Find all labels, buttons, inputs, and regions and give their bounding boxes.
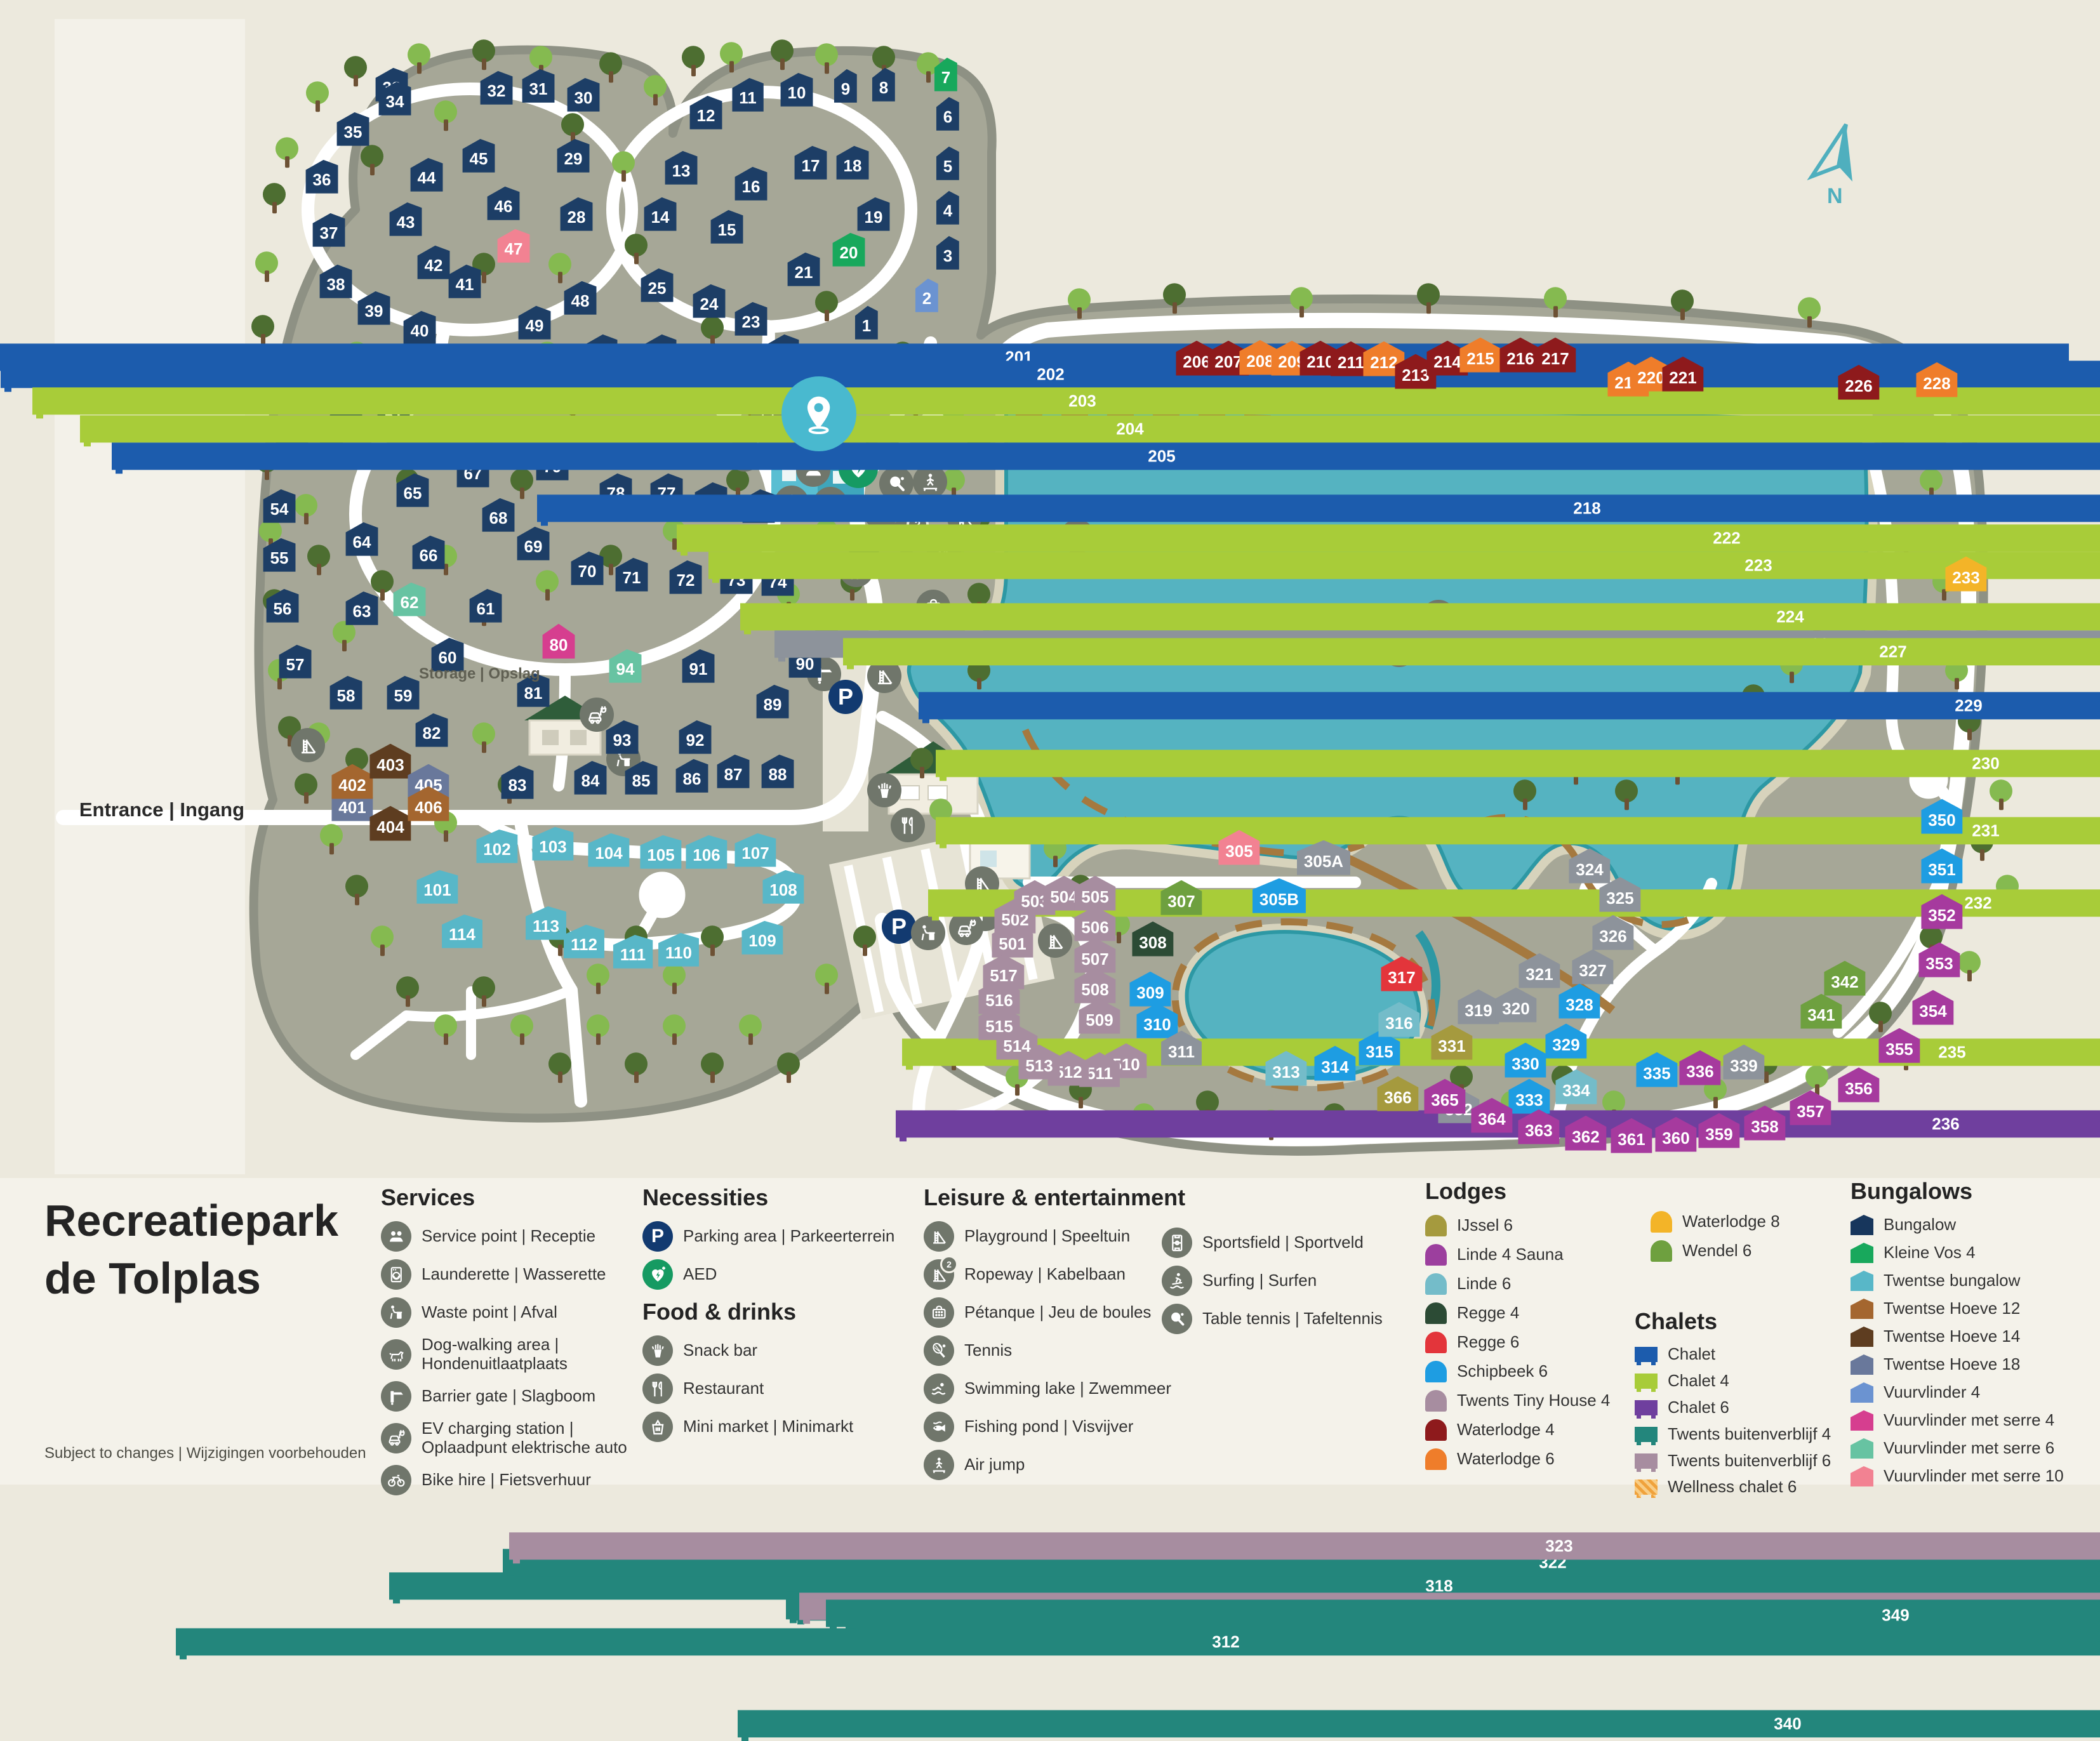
legend-item-label: Table tennis | Tafeltennis xyxy=(1202,1309,1383,1328)
legend-item: Twentse Hoeve 14 xyxy=(1851,1327,2064,1347)
legend-item-label: Twentse Hoeve 14 xyxy=(1884,1327,2020,1346)
tree xyxy=(701,316,724,339)
tree xyxy=(1417,283,1440,306)
tree xyxy=(1163,283,1186,306)
legend-item: Snack bar xyxy=(642,1335,853,1366)
park-title-line1: Recreatiepark xyxy=(44,1192,338,1250)
tree xyxy=(1671,289,1694,312)
tennis-icon xyxy=(924,1335,954,1366)
plot-marker-349[interactable]: 349 xyxy=(846,1601,2100,1629)
legend-item: Dog-walking area | Hondenuitlaatplaats xyxy=(381,1335,635,1374)
tree xyxy=(529,46,552,69)
legend-item-label: EV charging station | Oplaadpunt elektri… xyxy=(422,1419,635,1457)
plot-marker-323[interactable]: 323 xyxy=(509,1532,2100,1559)
legend-header: Food & drinks xyxy=(642,1299,853,1325)
legend-item: Vuurvlinder met serre 10 xyxy=(1851,1466,2064,1486)
swim-icon xyxy=(924,1374,954,1404)
plot-marker-340[interactable]: 340 xyxy=(738,1710,2100,1737)
legend-item: Launderette | Wasserette xyxy=(381,1259,635,1290)
legend: Recreatiepark de Tolplas Subject to chan… xyxy=(0,1178,2100,1485)
legend-item: Twentse Hoeve 18 xyxy=(1851,1354,2064,1375)
legend-item-label: Waterlodge 8 xyxy=(1682,1212,1780,1231)
legend-item-label: Vuurvlinder 4 xyxy=(1884,1383,1980,1402)
legend-item-label: Fishing pond | Visvijver xyxy=(964,1417,1133,1436)
plot-marker-224[interactable]: 224 xyxy=(740,603,2100,630)
sportsfield-icon xyxy=(1162,1228,1192,1258)
tree xyxy=(771,39,794,62)
legend-item: Tennis xyxy=(924,1335,1178,1366)
accommodation-swatch xyxy=(1851,1438,1873,1459)
accommodation-swatch xyxy=(1425,1361,1447,1382)
tree xyxy=(548,253,571,275)
plot-marker-227[interactable]: 227 xyxy=(843,638,2100,665)
legend-item-label: Parking area | Parkeerterrein xyxy=(683,1227,894,1246)
legend-header: Services xyxy=(381,1184,635,1211)
accommodation-swatch xyxy=(1851,1354,1873,1375)
legend-necessities: NecessitiesPParking area | Parkeerterrei… xyxy=(642,1184,894,1297)
plot-marker-222[interactable]: 222 xyxy=(677,524,2100,552)
legend-item: Chalet 4 xyxy=(1635,1372,1831,1391)
tree xyxy=(967,583,990,606)
accommodation-swatch xyxy=(1651,1240,1672,1262)
tree xyxy=(682,46,705,69)
accommodation-swatch xyxy=(1851,1327,1873,1347)
legend-item-label: Waterlodge 4 xyxy=(1457,1420,1555,1440)
legend-item: EV charging station | Oplaadpunt elektri… xyxy=(381,1419,635,1457)
accommodation-swatch xyxy=(1425,1419,1447,1441)
tree xyxy=(472,976,495,999)
parking-icon: P xyxy=(642,1221,673,1252)
legend-item-label: Twentse Hoeve 18 xyxy=(1884,1355,2020,1374)
accommodation-swatch xyxy=(1851,1299,1873,1319)
tree xyxy=(815,43,838,66)
legend-item-label: Chalet xyxy=(1668,1345,1715,1364)
legend-item-label: Wellness chalet 6 xyxy=(1668,1478,1797,1497)
accommodation-swatch xyxy=(1651,1211,1672,1233)
tree xyxy=(344,56,367,79)
legend-item-label: Dog-walking area | Hondenuitlaatplaats xyxy=(422,1335,635,1374)
legend-leisure-2: Sportsfield | SportveldSurfing | SurfenT… xyxy=(1162,1228,1383,1342)
legend-item: Pétanque | Jeu de boules xyxy=(924,1297,1178,1328)
tree xyxy=(1544,287,1567,310)
legend-item: Service point | Receptie xyxy=(381,1221,635,1252)
barrier-icon xyxy=(381,1381,411,1412)
tree xyxy=(510,468,533,491)
legend-item: Sportsfield | Sportveld xyxy=(1162,1228,1383,1258)
tree xyxy=(255,251,278,274)
legend-item: Air jump xyxy=(924,1450,1178,1480)
tree xyxy=(701,925,724,948)
tree xyxy=(434,1014,457,1037)
tree xyxy=(434,100,457,123)
tree xyxy=(306,81,329,104)
legend-item-label: Schipbeek 6 xyxy=(1457,1362,1548,1381)
tree xyxy=(720,42,743,65)
tree xyxy=(587,963,609,986)
accommodation-swatch xyxy=(1635,1427,1658,1442)
legend-item-label: Vuurvlinder met serre 6 xyxy=(1884,1439,2054,1458)
restaurant-icon xyxy=(642,1374,673,1404)
accommodation-swatch xyxy=(1851,1410,1873,1431)
legend-item-label: Vuurvlinder met serre 4 xyxy=(1884,1411,2054,1430)
legend-item: IJssel 6 xyxy=(1425,1215,1610,1236)
legend-item-label: Twents Tiny House 4 xyxy=(1457,1391,1610,1410)
petanque-icon xyxy=(924,1297,954,1328)
tree xyxy=(663,963,686,986)
legend-item-label: Linde 4 Sauna xyxy=(1457,1245,1564,1264)
tree xyxy=(777,1052,800,1075)
tree xyxy=(1805,1065,1828,1088)
park-title: Recreatiepark de Tolplas xyxy=(44,1192,338,1307)
legend-item: Surfing | Surfen xyxy=(1162,1266,1383,1296)
tree xyxy=(361,145,383,168)
ev-icon[interactable] xyxy=(580,698,614,732)
accommodation-swatch xyxy=(1635,1400,1658,1415)
tree xyxy=(663,1014,686,1037)
tree xyxy=(510,1014,533,1037)
tree xyxy=(251,315,274,338)
tree xyxy=(371,925,394,948)
restaurant-icon[interactable] xyxy=(891,808,925,842)
tree xyxy=(295,494,317,517)
tree xyxy=(295,773,317,796)
fish-icon xyxy=(924,1412,954,1442)
accommodation-swatch xyxy=(1425,1332,1447,1353)
tree xyxy=(536,570,559,593)
plot-marker-229[interactable]: 229 xyxy=(919,692,2100,719)
tabletennis-icon xyxy=(1162,1304,1192,1334)
legend-item: Linde 6 xyxy=(1425,1273,1610,1295)
tree xyxy=(612,151,635,174)
legend-item-label: Barrier gate | Slagboom xyxy=(422,1387,595,1406)
plot-marker-202[interactable]: 202 xyxy=(1,361,2100,388)
snack-icon[interactable] xyxy=(867,773,901,807)
legend-item: Twentse bungalow xyxy=(1851,1271,2064,1291)
legend-item-label: Linde 6 xyxy=(1457,1274,1511,1294)
minimarket-icon xyxy=(642,1412,673,1442)
legend-item-label: Ropeway | Kabelbaan xyxy=(964,1265,1126,1284)
legend-item: Wellness chalet 6 xyxy=(1635,1478,1831,1497)
plot-marker-204[interactable]: 204 xyxy=(80,415,2100,442)
legend-item-label: Regge 6 xyxy=(1457,1333,1519,1352)
legend-item-label: Mini market | Minimarkt xyxy=(683,1417,853,1436)
legend-item: Vuurvlinder met serre 6 xyxy=(1851,1438,2064,1459)
legend-item-label: Restaurant xyxy=(683,1379,764,1398)
tree xyxy=(625,234,648,256)
accommodation-swatch xyxy=(1851,1271,1873,1291)
legend-lodges-2: Waterlodge 8Wendel 6 xyxy=(1651,1211,1780,1269)
legend-item: PParking area | Parkeerterrein xyxy=(642,1221,894,1252)
playground-icon xyxy=(924,1221,954,1252)
tree xyxy=(263,183,286,206)
accommodation-swatch xyxy=(1425,1273,1447,1295)
tree xyxy=(1990,779,2012,802)
tree xyxy=(726,468,749,491)
subject-note: Subject to changes | Wijzigingen voorbeh… xyxy=(44,1445,366,1462)
legend-bungalows: BungalowsBungalowKleine Vos 4Twentse bun… xyxy=(1851,1178,2064,1494)
legend-leisure-1: Leisure & entertainmentPlayground | Spee… xyxy=(924,1184,1185,1488)
legend-item-label: Air jump xyxy=(964,1455,1025,1474)
legend-item-label: IJssel 6 xyxy=(1457,1216,1513,1235)
legend-item-label: Tennis xyxy=(964,1341,1012,1360)
legend-item-label: Chalet 6 xyxy=(1668,1398,1729,1417)
waste-icon[interactable] xyxy=(911,916,945,950)
legend-food: Food & drinksSnack barRestaurantMini mar… xyxy=(642,1299,853,1450)
entrance-label: Entrance | Ingang xyxy=(79,798,244,821)
legend-item-label: Wendel 6 xyxy=(1682,1241,1751,1261)
legend-item-label: Regge 4 xyxy=(1457,1304,1519,1323)
legend-item: Chalet xyxy=(1635,1345,1831,1364)
park-title-line2: de Tolplas xyxy=(44,1250,338,1307)
legend-item: Waterlodge 4 xyxy=(1425,1419,1610,1441)
waste-icon xyxy=(381,1297,411,1328)
tree xyxy=(1068,288,1091,311)
plot-marker-312[interactable]: 312 xyxy=(176,1628,2100,1655)
tree xyxy=(644,75,667,98)
tree xyxy=(396,976,419,999)
legend-item-label: Pétanque | Jeu de boules xyxy=(964,1303,1151,1322)
tree xyxy=(872,46,895,69)
playground-icon[interactable] xyxy=(291,728,325,762)
tree xyxy=(910,748,933,771)
legend-item: Kleine Vos 4 xyxy=(1851,1243,2064,1263)
legend-item-label: Bungalow xyxy=(1884,1215,1956,1235)
legend-item-label: Vuurvlinder met serre 10 xyxy=(1884,1467,2064,1486)
legend-item: Barrier gate | Slagboom xyxy=(381,1381,635,1412)
service-icon xyxy=(381,1221,411,1252)
tree xyxy=(472,722,495,745)
pin-icon[interactable] xyxy=(781,376,856,451)
legend-item: Wendel 6 xyxy=(1651,1240,1780,1262)
tree xyxy=(548,1052,571,1075)
legend-chalets: ChaletsChaletChalet 4Chalet 6Twents buit… xyxy=(1635,1308,1831,1504)
plot-marker-203[interactable]: 203 xyxy=(32,387,2100,414)
legend-item-label: Twentse bungalow xyxy=(1884,1271,2020,1290)
legend-item: Bike hire | Fietsverhuur xyxy=(381,1465,635,1495)
legend-item: AED xyxy=(642,1259,894,1290)
legend-item: Restaurant xyxy=(642,1374,853,1404)
accommodation-swatch xyxy=(1425,1244,1447,1266)
tree xyxy=(739,1014,762,1037)
legend-item: Regge 6 xyxy=(1425,1332,1610,1353)
legend-item: 2Ropeway | Kabelbaan xyxy=(924,1259,1178,1290)
snack-icon xyxy=(642,1335,673,1366)
legend-item-label: Sportsfield | Sportveld xyxy=(1202,1233,1364,1252)
tree xyxy=(599,52,622,75)
legend-item: Twents Tiny House 4 xyxy=(1425,1390,1610,1412)
ev-icon xyxy=(381,1423,411,1453)
tree xyxy=(815,291,838,314)
legend-header: Leisure & entertainment xyxy=(924,1184,1185,1211)
legend-item-label: AED xyxy=(683,1265,717,1284)
legend-item-label: Surfing | Surfen xyxy=(1202,1271,1317,1290)
accommodation-swatch xyxy=(1425,1302,1447,1324)
legend-item-label: Chalet 4 xyxy=(1668,1372,1729,1391)
legend-item: Linde 4 Sauna xyxy=(1425,1244,1610,1266)
tree xyxy=(1798,297,1821,320)
tree xyxy=(1920,468,1943,491)
legend-item: Regge 4 xyxy=(1425,1302,1610,1324)
accommodation-swatch xyxy=(1635,1480,1658,1495)
tree xyxy=(1958,951,1981,974)
tree xyxy=(815,963,838,986)
tree xyxy=(625,1052,648,1075)
legend-item-label: Twents buitenverblijf 6 xyxy=(1668,1452,1831,1471)
tree xyxy=(371,570,394,593)
legend-item-label: Twents buitenverblijf 4 xyxy=(1668,1425,1831,1444)
accommodation-swatch xyxy=(1635,1347,1658,1362)
legend-lodges: LodgesIJssel 6Linde 4 SaunaLinde 6Regge … xyxy=(1425,1178,1610,1478)
accommodation-swatch xyxy=(1425,1390,1447,1412)
accommodation-swatch xyxy=(1851,1243,1873,1263)
playground-icon[interactable] xyxy=(1038,923,1072,958)
parking-icon[interactable]: P xyxy=(882,910,916,944)
tree xyxy=(561,113,584,136)
legend-item-label: Service point | Receptie xyxy=(422,1227,595,1246)
legend-item: Bungalow xyxy=(1851,1215,2064,1235)
tree xyxy=(276,137,298,160)
storage-label: Storage | Opslag xyxy=(419,665,540,683)
tree xyxy=(1615,779,1638,802)
plot-marker-218[interactable]: 218 xyxy=(537,494,2100,522)
accommodation-swatch xyxy=(1851,1215,1873,1235)
legend-item-label: Snack bar xyxy=(683,1341,757,1360)
accommodation-swatch xyxy=(1635,1453,1658,1469)
legend-header: Necessities xyxy=(642,1184,894,1211)
accommodation-swatch xyxy=(1851,1466,1873,1486)
compass-n-label: N xyxy=(1827,184,1843,209)
tree xyxy=(345,875,368,897)
legend-item: Chalet 6 xyxy=(1635,1398,1831,1417)
legend-item: Waste point | Afval xyxy=(381,1297,635,1328)
legend-item-label: Kleine Vos 4 xyxy=(1884,1243,1976,1262)
accommodation-swatch xyxy=(1425,1215,1447,1236)
legend-item: Twents buitenverblijf 4 xyxy=(1635,1425,1831,1444)
legend-header: Lodges xyxy=(1425,1178,1610,1205)
legend-item-label: Bike hire | Fietsverhuur xyxy=(422,1471,591,1490)
tree xyxy=(853,925,876,948)
tree xyxy=(1869,1002,1892,1024)
tree xyxy=(1290,287,1313,310)
legend-item: Waterlodge 8 xyxy=(1651,1211,1780,1233)
park-map: P2PP 12345678910111213141516171819202122… xyxy=(0,0,2100,1485)
legend-item: Swimming lake | Zwemmeer xyxy=(924,1374,1178,1404)
legend-header: Chalets xyxy=(1635,1308,1831,1335)
legend-item-label: Waterlodge 6 xyxy=(1457,1450,1555,1469)
legend-item: Waterlodge 6 xyxy=(1425,1448,1610,1470)
laundry-icon xyxy=(381,1259,411,1290)
legend-item: Vuurvlinder 4 xyxy=(1851,1382,2064,1403)
accommodation-swatch xyxy=(1851,1382,1873,1403)
legend-item: Mini market | Minimarkt xyxy=(642,1412,853,1442)
tree xyxy=(701,1052,724,1075)
tree xyxy=(307,545,330,567)
legend-item: Schipbeek 6 xyxy=(1425,1361,1610,1382)
legend-item: Twentse Hoeve 12 xyxy=(1851,1299,2064,1319)
tree xyxy=(587,1014,609,1037)
dog-icon xyxy=(381,1339,411,1370)
ropeway-icon: 2 xyxy=(924,1259,954,1290)
legend-item-label: Launderette | Wasserette xyxy=(422,1265,606,1284)
aed-icon xyxy=(642,1259,673,1290)
legend-item: Fishing pond | Visvijver xyxy=(924,1412,1178,1442)
parking-icon[interactable]: P xyxy=(828,680,863,714)
airjump-icon xyxy=(924,1450,954,1480)
tree xyxy=(408,43,430,66)
legend-item-label: Swimming lake | Zwemmeer xyxy=(964,1379,1171,1398)
legend-item: Vuurvlinder met serre 4 xyxy=(1851,1410,2064,1431)
legend-services: ServicesService point | ReceptieLaundere… xyxy=(381,1184,635,1503)
legend-item-label: Twentse Hoeve 12 xyxy=(1884,1299,2020,1318)
tree xyxy=(320,824,343,847)
accommodation-swatch xyxy=(1635,1374,1658,1389)
legend-item-label: Playground | Speeltuin xyxy=(964,1227,1130,1246)
tree xyxy=(472,39,495,62)
plot-marker-230[interactable]: 230 xyxy=(936,750,2100,777)
plot-marker-205[interactable]: 205 xyxy=(112,442,2100,470)
legend-item: Twents buitenverblijf 6 xyxy=(1635,1452,1831,1471)
legend-item: Table tennis | Tafeltennis xyxy=(1162,1304,1383,1334)
plot-marker-223[interactable]: 223 xyxy=(708,552,2100,579)
legend-item: Playground | Speeltuin xyxy=(924,1221,1178,1252)
legend-header: Bungalows xyxy=(1851,1178,2064,1205)
outside-road-strip xyxy=(55,19,245,1174)
tree xyxy=(1513,779,1536,802)
legend-item-label: Waste point | Afval xyxy=(422,1303,557,1322)
accommodation-swatch xyxy=(1425,1448,1447,1470)
bike-icon xyxy=(381,1465,411,1495)
surf-icon xyxy=(1162,1266,1192,1296)
